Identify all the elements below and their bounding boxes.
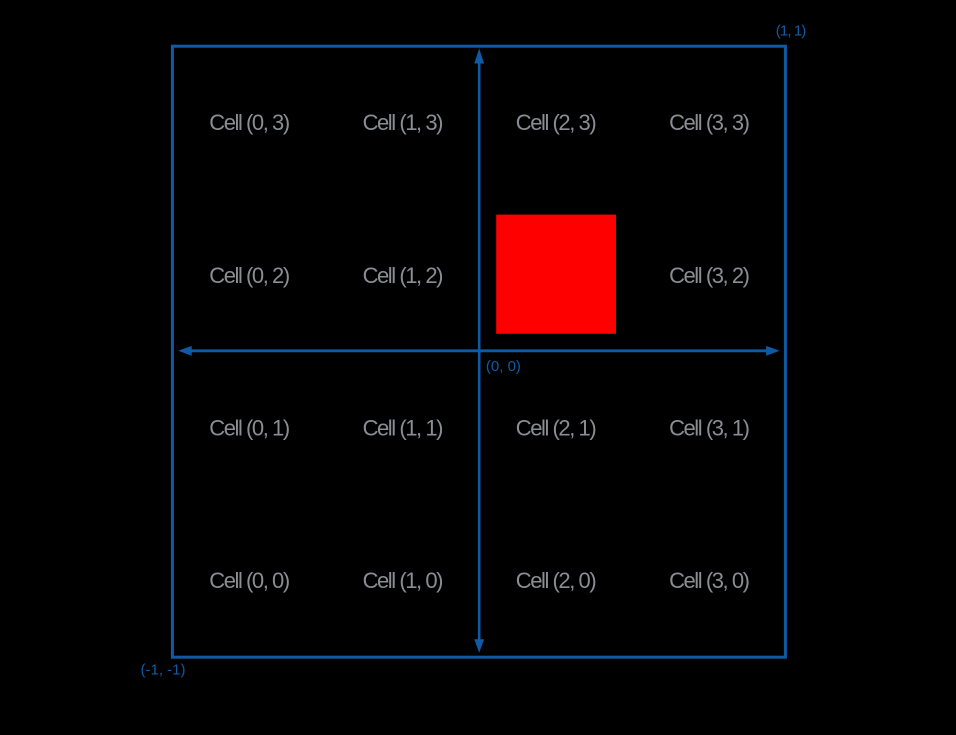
svg-text:Cell (3, 3): Cell (3, 3) bbox=[669, 110, 749, 135]
svg-text:Cell (0, 3): Cell (0, 3) bbox=[209, 110, 289, 135]
svg-text:Cell (0, 2): Cell (0, 2) bbox=[209, 263, 289, 288]
svg-text:Cell (3, 1): Cell (3, 1) bbox=[669, 416, 749, 441]
svg-text:Cell (3, 2): Cell (3, 2) bbox=[669, 263, 749, 288]
svg-text:Cell (2, 0): Cell (2, 0) bbox=[516, 568, 596, 593]
svg-text:Cell (2, 3): Cell (2, 3) bbox=[516, 110, 596, 135]
svg-text:Cell (2, 1): Cell (2, 1) bbox=[516, 416, 596, 441]
svg-text:Cell (1, 0): Cell (1, 0) bbox=[363, 568, 443, 593]
svg-text:Cell (1, 3): Cell (1, 3) bbox=[363, 110, 443, 135]
svg-text:Cell (3, 0): Cell (3, 0) bbox=[669, 568, 749, 593]
svg-text:(-1, -1): (-1, -1) bbox=[141, 662, 186, 679]
svg-text:(0, 0): (0, 0) bbox=[486, 358, 521, 375]
svg-text:Cell (0, 0): Cell (0, 0) bbox=[209, 568, 289, 593]
svg-text:Cell (0, 1): Cell (0, 1) bbox=[209, 416, 289, 441]
svg-text:(1, 1): (1, 1) bbox=[776, 23, 807, 40]
svg-text:Cell (1, 1): Cell (1, 1) bbox=[363, 416, 443, 441]
svg-text:Cell (1, 2): Cell (1, 2) bbox=[363, 263, 443, 288]
